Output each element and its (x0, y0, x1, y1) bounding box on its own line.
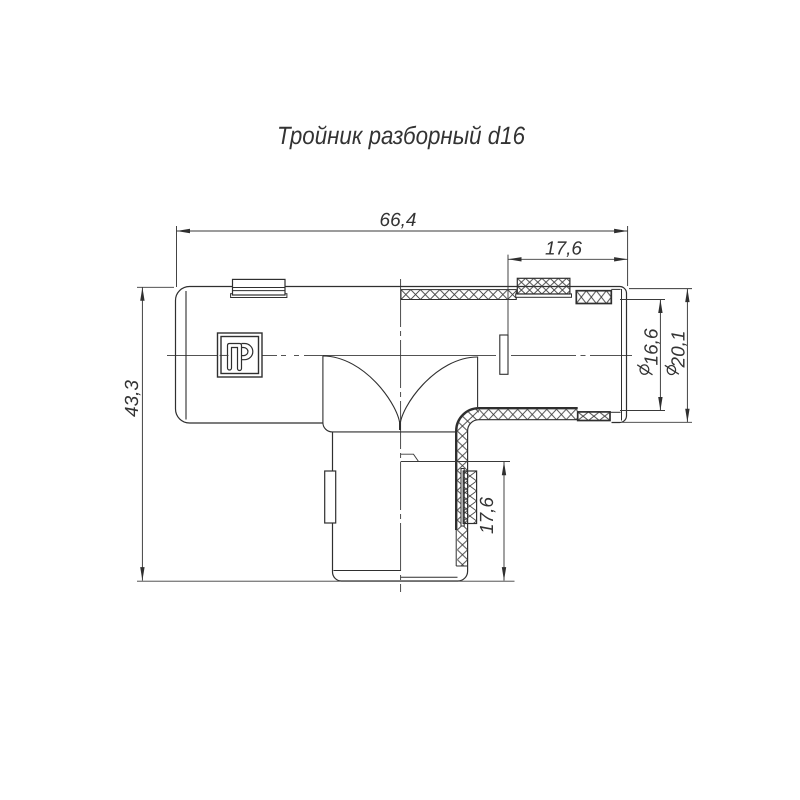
svg-text:43,3: 43,3 (122, 380, 143, 417)
svg-text:16,6: 16,6 (642, 328, 663, 365)
svg-text:17,6: 17,6 (545, 239, 582, 260)
svg-text:20,1: 20,1 (669, 331, 690, 369)
svg-text:66,4: 66,4 (380, 210, 417, 231)
svg-text:17,6: 17,6 (477, 497, 498, 534)
svg-text:Тройник разборный d16: Тройник разборный d16 (277, 122, 525, 150)
